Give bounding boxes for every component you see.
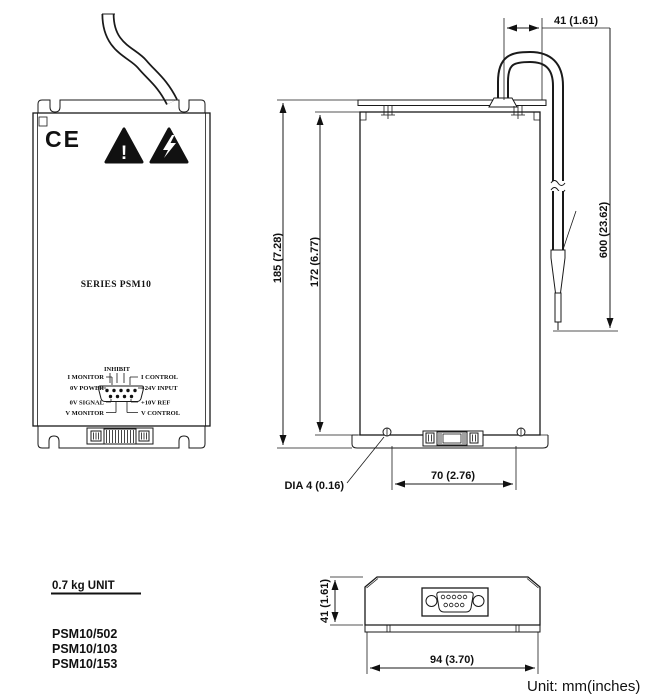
pin-label-imonitor: I MONITOR: [67, 374, 104, 381]
technical-drawing: CE ! SERIES PSM10 INHIBIT I MONITOR 0V P…: [0, 0, 672, 698]
body-corner-steps: [360, 112, 540, 120]
side-bottom-connector: [423, 431, 483, 446]
svg-text:41 (1.61): 41 (1.61): [319, 579, 331, 623]
cable-wire: [562, 211, 576, 253]
pin-label-inhibit: INHIBIT: [104, 366, 131, 373]
cable-gland: [489, 98, 517, 107]
mounting-hole-right: [517, 428, 525, 436]
notes-block: 0.7 kg UNIT PSM10/502 PSM10/103 PSM10/15…: [51, 580, 640, 695]
front-bottom-connector: [87, 428, 153, 444]
svg-text:185 (7.28): 185 (7.28): [272, 233, 284, 283]
unit-note: Unit: mm(inches): [527, 678, 640, 695]
bottom-base-plate: [365, 625, 540, 632]
corner-detail: [39, 117, 47, 126]
dim-height-inner: 172 (6.77): [309, 112, 360, 435]
dsub-connector-top-icon: [422, 588, 488, 616]
front-cable: [102, 14, 172, 102]
caution-icon: !: [106, 129, 142, 164]
side-body: [360, 112, 540, 435]
model-number-1: PSM10/502: [52, 627, 117, 641]
front-top-flange: [38, 100, 205, 113]
model-number-3: PSM10/153: [52, 657, 117, 671]
svg-text:172 (6.77): 172 (6.77): [309, 237, 321, 287]
side-view: 185 (7.28) 172 (6.77) 41 (1.61) 600 (23.…: [272, 15, 618, 492]
mounting-hole-left: [383, 428, 391, 436]
side-top-flange: [358, 100, 546, 106]
weight-note: 0.7 kg UNIT: [52, 580, 115, 592]
pin-label-icontrol: I CONTROL: [141, 374, 179, 381]
pin-label-vcontrol: V CONTROL: [141, 410, 181, 417]
pin-label-vmonitor: V MONITOR: [65, 410, 104, 417]
model-number-2: PSM10/103: [52, 642, 117, 656]
svg-text:!: !: [121, 143, 127, 164]
ce-mark: CE: [45, 126, 81, 152]
front-view: CE ! SERIES PSM10 INHIBIT I MONITOR 0V P…: [33, 14, 210, 448]
svg-text:DIA 4 (0.16): DIA 4 (0.16): [284, 480, 344, 492]
pinout-labels: INHIBIT I MONITOR 0V POWER 0V SIGNAL V M…: [65, 366, 180, 417]
svg-text:70 (2.76): 70 (2.76): [431, 470, 475, 482]
pin-label-24vinput: +24V INPUT: [141, 385, 178, 392]
bottom-view: 41 (1.61) 94 (3.70): [319, 577, 540, 674]
outline-drawing-page: CE ! SERIES PSM10 INHIBIT I MONITOR 0V P…: [0, 0, 672, 698]
pin-label-10vref: +10V REF: [141, 400, 170, 407]
dim-width: 94 (3.70): [367, 632, 538, 674]
series-label: SERIES PSM10: [81, 280, 152, 290]
dim-hole-dia: DIA 4 (0.16): [284, 437, 384, 492]
bottom-body: [365, 577, 540, 625]
high-voltage-icon: [151, 129, 187, 162]
svg-text:41 (1.61): 41 (1.61): [554, 15, 598, 27]
dim-hole-pitch: 70 (2.76): [392, 446, 516, 490]
svg-text:94 (3.70): 94 (3.70): [430, 654, 474, 666]
dim-depth: 41 (1.61): [319, 577, 363, 625]
pin-label-0vsignal: 0V SIGNAL: [70, 400, 105, 407]
svg-text:600 (23.62): 600 (23.62): [598, 202, 610, 259]
cable-ferrule: [551, 250, 565, 293]
